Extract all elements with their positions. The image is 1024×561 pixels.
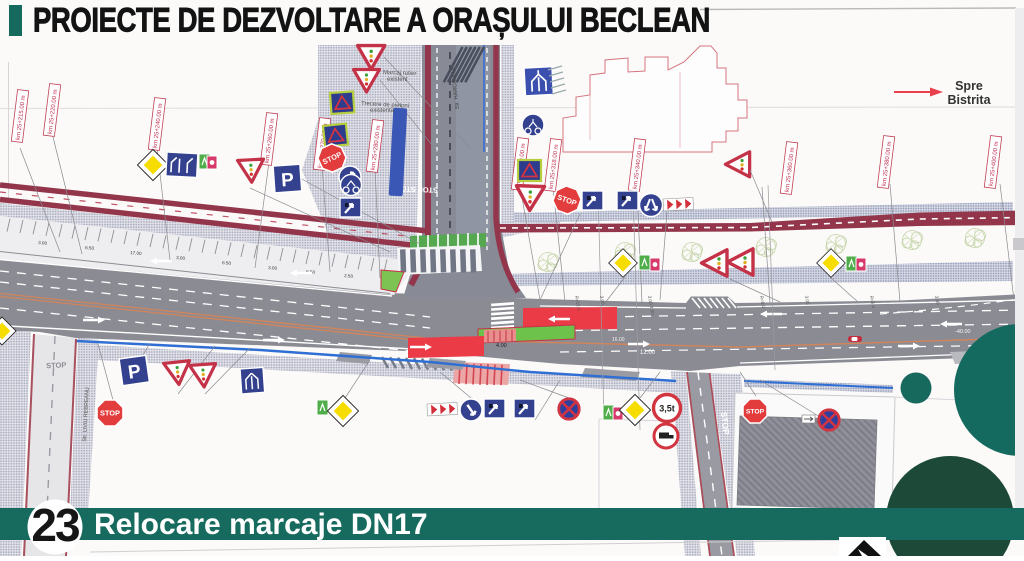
- svg-text:STOP: STOP: [46, 360, 67, 370]
- svg-text:6.50: 6.50: [85, 245, 95, 251]
- svg-text:existent: existent: [387, 77, 408, 83]
- svg-text:Spre: Spre: [955, 79, 983, 93]
- svg-text:4.00: 4.00: [496, 343, 507, 349]
- svg-text:-40.00: -40.00: [955, 329, 971, 335]
- svg-text:23: 23: [31, 499, 79, 551]
- svg-text:PROIECTE DE DEZVOLTARE A ORAȘU: PROIECTE DE DEZVOLTARE A ORAȘULUI BECLEA…: [33, 2, 710, 40]
- svg-text:Bistrita: Bistrita: [947, 93, 991, 107]
- svg-text:12.00: 12.00: [640, 350, 656, 356]
- svg-text:3.00: 3.00: [176, 255, 186, 261]
- svg-text:3.00: 3.00: [38, 240, 48, 246]
- svg-text:16.00: 16.00: [612, 337, 625, 343]
- svg-text:6.50: 6.50: [222, 260, 232, 266]
- svg-text:2.50: 2.50: [344, 273, 354, 279]
- svg-text:Relocare marcaje DN17: Relocare marcaje DN17: [94, 508, 428, 541]
- svg-text:existenta: existenta: [370, 108, 395, 114]
- svg-text:3.00: 3.00: [268, 265, 278, 271]
